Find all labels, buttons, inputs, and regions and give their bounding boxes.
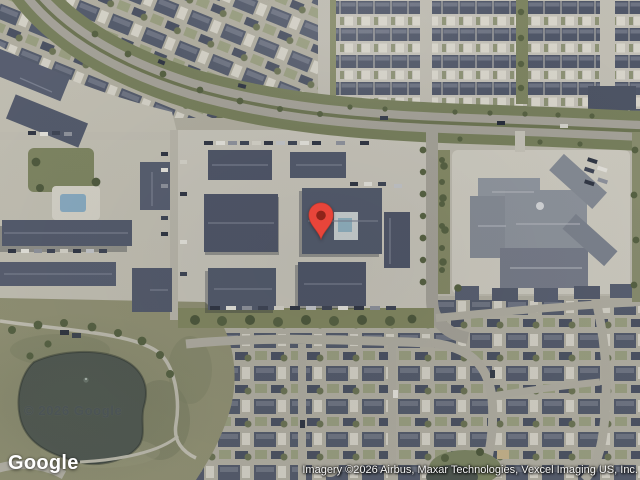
- map-viewport[interactable]: © 2026 Google Google Imagery ©2026 Airbu…: [0, 0, 640, 480]
- pin-dot: [316, 211, 326, 221]
- pin-body: [309, 203, 333, 240]
- satellite-imagery: [0, 0, 640, 480]
- imagery-attribution: Imagery ©2026 Airbus, Maxar Technologies…: [302, 464, 638, 476]
- google-logo[interactable]: Google: [8, 452, 79, 475]
- location-pin-icon[interactable]: [308, 202, 334, 240]
